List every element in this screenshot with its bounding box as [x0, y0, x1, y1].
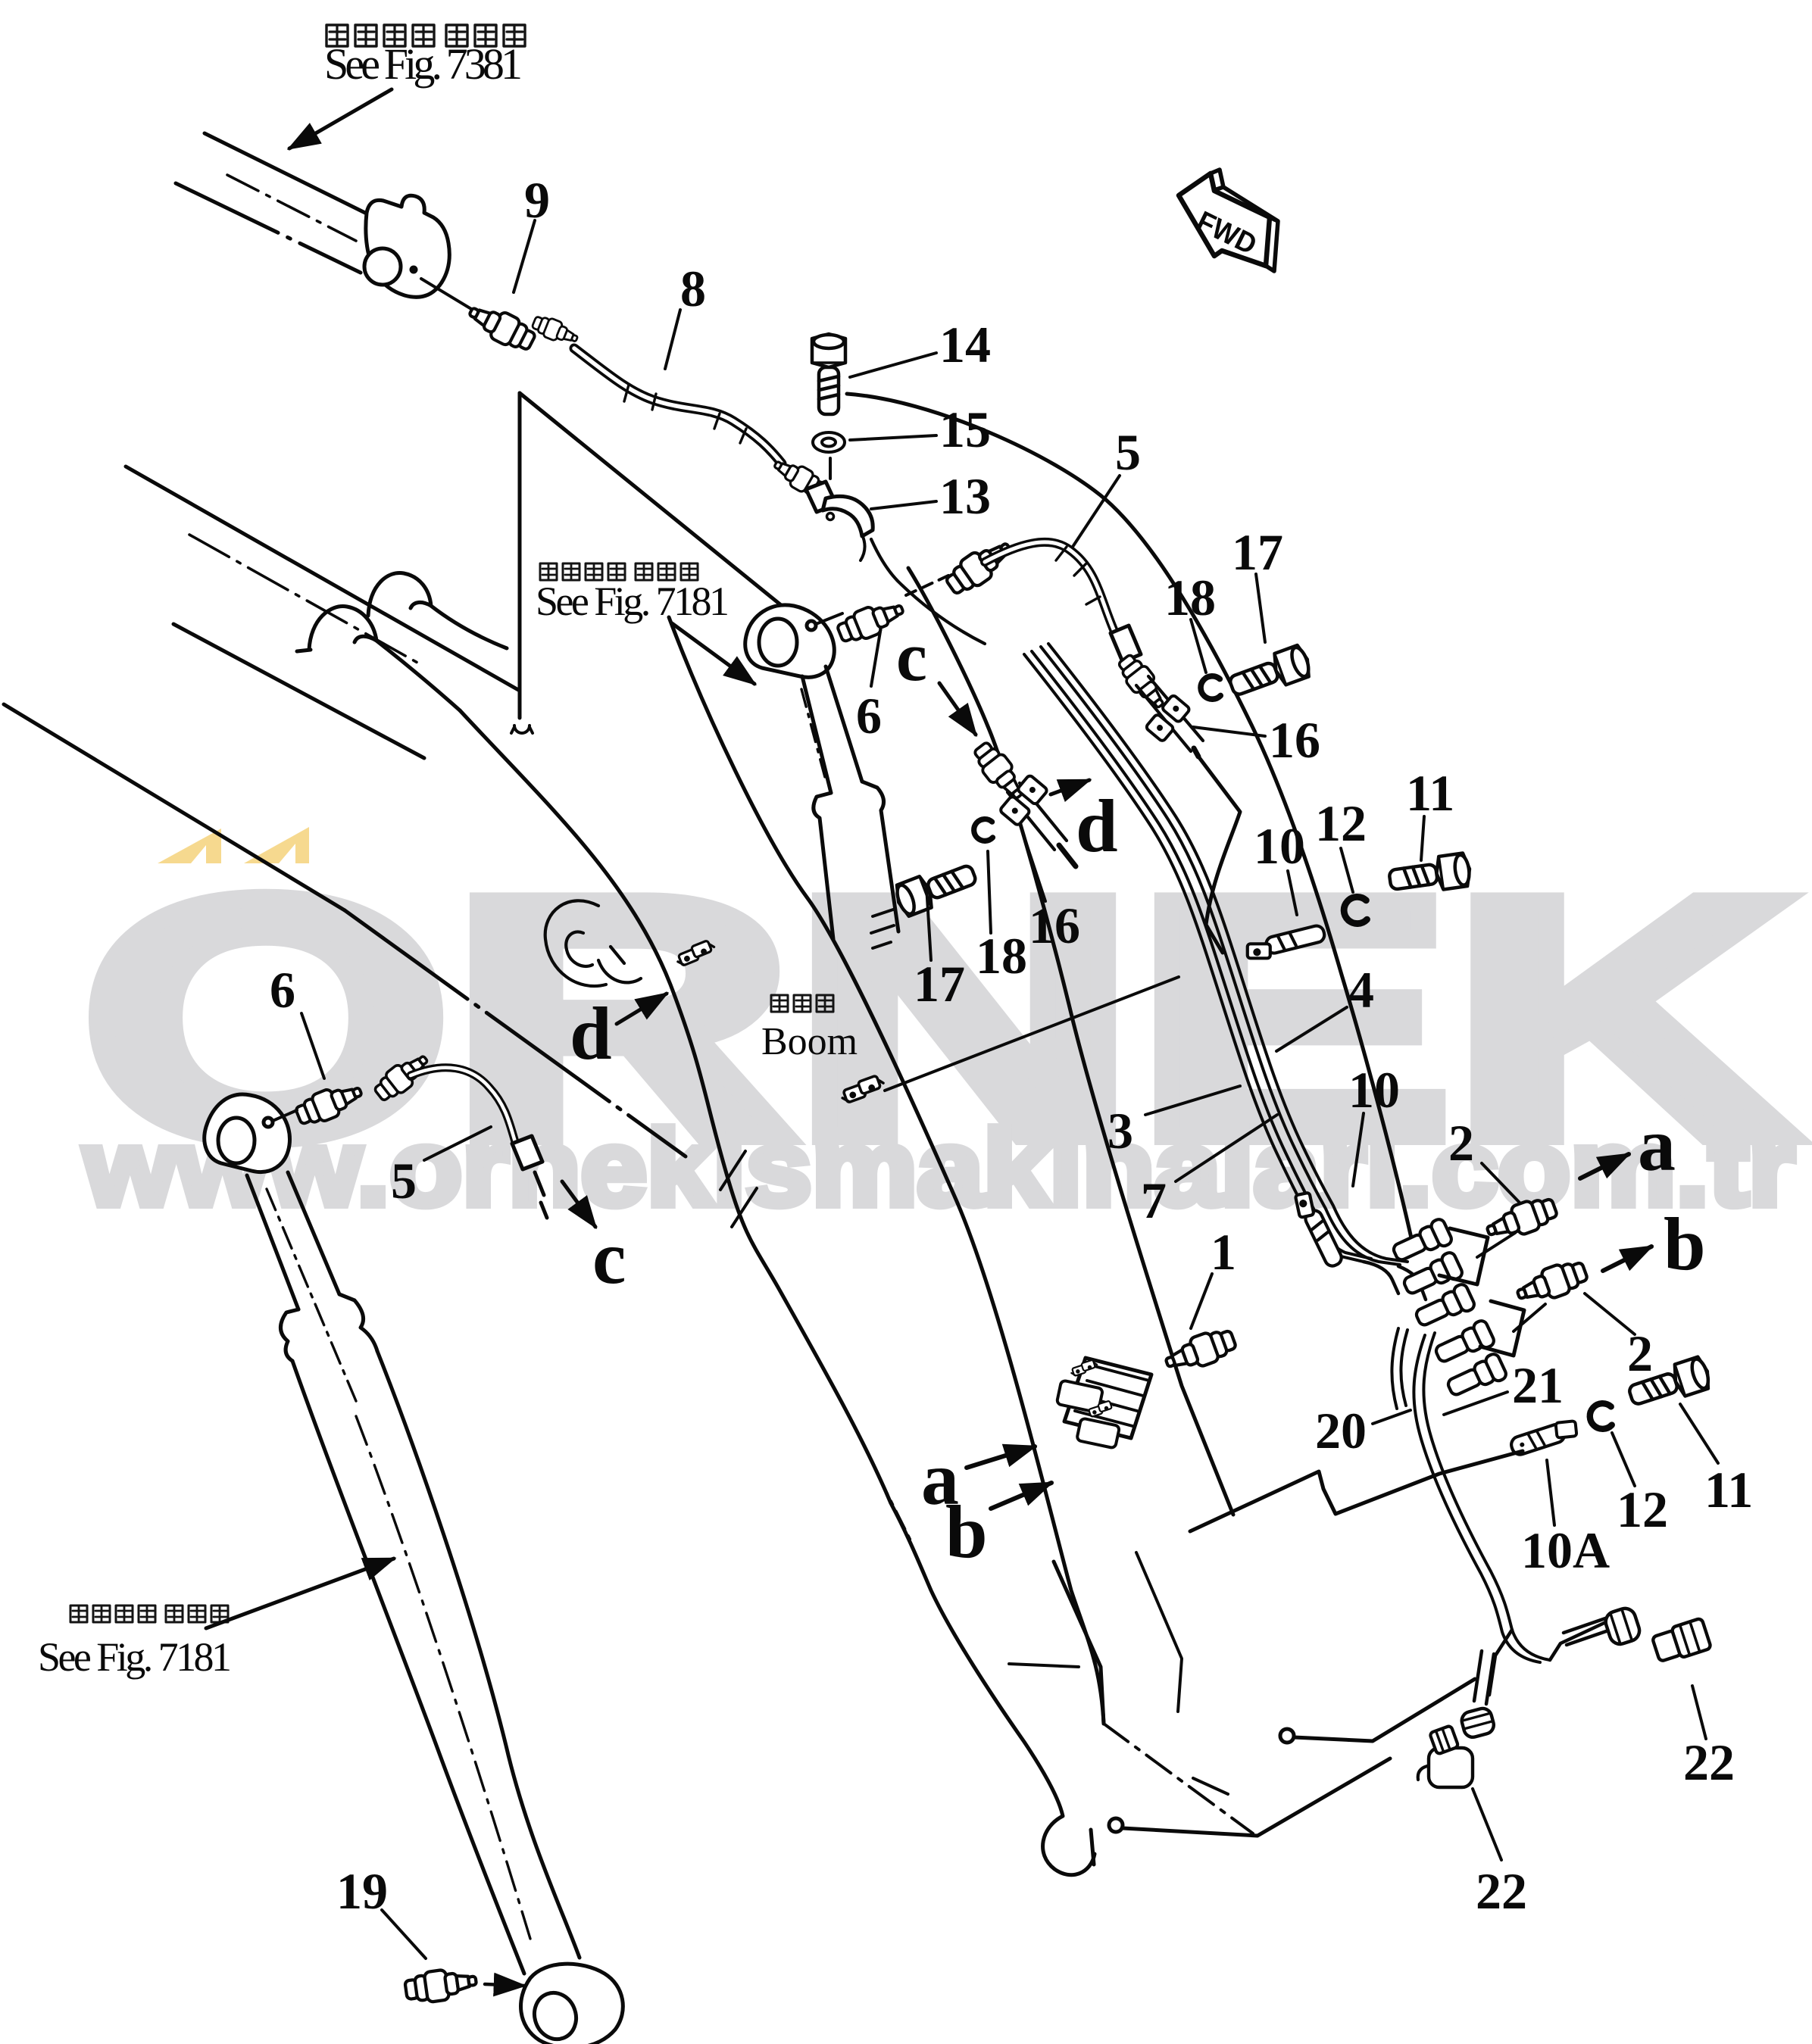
svg-text:a: a [1638, 1103, 1676, 1187]
svg-text:Boom: Boom [761, 1020, 858, 1063]
svg-text:12: 12 [1315, 794, 1367, 852]
svg-text:6: 6 [270, 961, 295, 1019]
svg-text:14: 14 [939, 316, 991, 373]
svg-text:5: 5 [1115, 423, 1141, 481]
svg-text:2: 2 [1448, 1114, 1474, 1172]
svg-text:18: 18 [1164, 569, 1216, 626]
svg-text:10A: 10A [1521, 1521, 1610, 1579]
svg-text:10: 10 [1254, 817, 1305, 875]
svg-text:19: 19 [336, 1862, 388, 1920]
svg-text:See Fig. 7181: See Fig. 7181 [536, 579, 729, 624]
svg-text:18: 18 [976, 927, 1027, 985]
svg-text:b: b [1664, 1202, 1706, 1286]
svg-text:3: 3 [1108, 1102, 1133, 1159]
svg-text:16: 16 [1029, 897, 1080, 954]
svg-text:20: 20 [1315, 1402, 1367, 1459]
svg-text:c: c [592, 1215, 626, 1300]
svg-text:17: 17 [914, 955, 965, 1013]
svg-text:5: 5 [391, 1152, 417, 1209]
svg-text:2: 2 [1627, 1325, 1653, 1382]
svg-text:8: 8 [680, 260, 706, 317]
svg-text:22: 22 [1683, 1733, 1735, 1791]
svg-text:22: 22 [1476, 1862, 1527, 1920]
svg-text:6: 6 [856, 687, 882, 744]
svg-text:4: 4 [1348, 961, 1374, 1019]
svg-text:See Fig. 7181: See Fig. 7181 [38, 1634, 232, 1680]
svg-text:12: 12 [1617, 1481, 1668, 1538]
svg-text:1: 1 [1211, 1223, 1236, 1281]
svg-text:11: 11 [1704, 1461, 1753, 1518]
svg-text:9: 9 [524, 171, 550, 229]
svg-text:d: d [570, 991, 612, 1075]
svg-text:13: 13 [939, 467, 991, 525]
svg-text:See Fig. 7381: See Fig. 7381 [324, 39, 523, 89]
svg-text:21: 21 [1512, 1356, 1564, 1414]
svg-text:7: 7 [1141, 1172, 1167, 1229]
svg-text:17: 17 [1232, 523, 1283, 581]
svg-text:11: 11 [1406, 764, 1454, 822]
svg-text:b: b [945, 1490, 988, 1574]
svg-text:d: d [1076, 784, 1118, 868]
svg-text:16: 16 [1269, 711, 1320, 769]
svg-text:10: 10 [1348, 1061, 1400, 1119]
svg-text:c: c [896, 618, 927, 695]
